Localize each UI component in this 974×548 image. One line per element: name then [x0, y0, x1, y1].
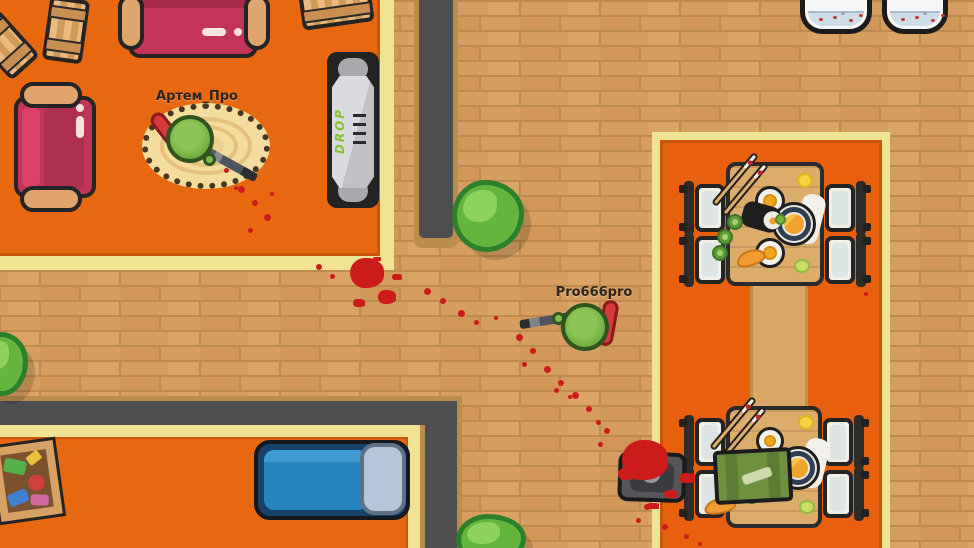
maki-piece	[712, 245, 728, 261]
wall-strip	[419, 0, 453, 238]
game-world[interactable]: DROP	[0, 0, 974, 548]
room1-wall-edge-right	[380, 0, 394, 270]
blood-drop	[596, 420, 601, 425]
chair	[822, 418, 864, 466]
lime-slice	[799, 500, 815, 514]
blood-drop	[224, 168, 229, 173]
blood-drop	[270, 192, 274, 196]
toy-box	[0, 440, 63, 522]
blood-drop	[234, 186, 238, 190]
blood-drop	[248, 228, 253, 233]
sink-basin	[800, 0, 872, 34]
treadmill-vents	[353, 108, 366, 144]
sink-water	[808, 11, 864, 26]
sofa-armrest	[20, 186, 82, 212]
room1-wall-edge-bottom	[0, 256, 394, 270]
treadmill-graffiti-text: DROP	[333, 81, 347, 181]
lime-slice	[794, 259, 810, 273]
couch-armrest	[118, 0, 144, 50]
blood-drop	[544, 366, 551, 373]
blood-drop	[252, 200, 258, 206]
player-hand	[552, 312, 565, 325]
couch	[128, 0, 258, 58]
blood-drop	[316, 264, 322, 270]
blood-drop	[698, 542, 702, 546]
blood-drop	[572, 392, 579, 399]
blood-drop	[424, 288, 431, 295]
blood-drop	[264, 214, 271, 221]
blood-drop	[586, 406, 592, 412]
blood-drop	[598, 442, 603, 447]
treadmill: DROP	[327, 52, 379, 208]
chair	[824, 184, 866, 232]
player-pro666pro[interactable]	[561, 303, 609, 351]
bed	[254, 440, 410, 520]
blood-drop	[636, 518, 641, 523]
blood-splatter	[622, 440, 668, 480]
chair	[822, 470, 864, 518]
lemon-slice	[797, 173, 813, 188]
couch-armrest	[244, 0, 270, 50]
sink-water	[890, 11, 940, 26]
blood-drop	[662, 524, 668, 530]
blood-drop	[558, 380, 564, 386]
player-hand	[203, 153, 216, 166]
ammo-crate	[713, 447, 794, 505]
player-name-label: Артем_Про	[156, 89, 238, 104]
garnish	[775, 214, 786, 225]
blood-drop	[684, 534, 689, 539]
room2-wall-top	[0, 401, 457, 425]
player-name-label: Pro666pro	[556, 285, 633, 300]
maki-piece	[727, 214, 743, 230]
sofa	[14, 96, 96, 198]
bed-pillow	[360, 443, 406, 515]
blood-drop	[458, 310, 465, 317]
chair	[824, 236, 866, 284]
sink-basin	[882, 0, 948, 34]
room2-wall-right	[425, 401, 457, 548]
bed-mattress	[264, 450, 368, 510]
table-runner	[750, 284, 808, 412]
blood-drop	[864, 292, 868, 296]
blood-drop	[554, 388, 559, 393]
blood-drop	[440, 298, 446, 304]
blood-drop	[568, 395, 572, 399]
blood-specks	[819, 18, 823, 21]
blood-splatter	[350, 258, 384, 288]
room2-wall-edge-top	[0, 425, 420, 437]
blood-drop	[494, 316, 498, 320]
blood-drop	[330, 274, 335, 279]
blood-drop	[474, 320, 479, 325]
lemon-slice	[798, 415, 814, 430]
blood-drop	[516, 334, 523, 341]
blood-drop	[644, 504, 650, 510]
blood-drop	[238, 186, 245, 193]
blood-drop	[604, 428, 610, 434]
maki-piece	[717, 229, 733, 245]
blood-drop	[522, 362, 527, 367]
blood-drop	[530, 348, 536, 354]
sofa-armrest	[20, 82, 82, 108]
blood-specks	[901, 18, 905, 21]
